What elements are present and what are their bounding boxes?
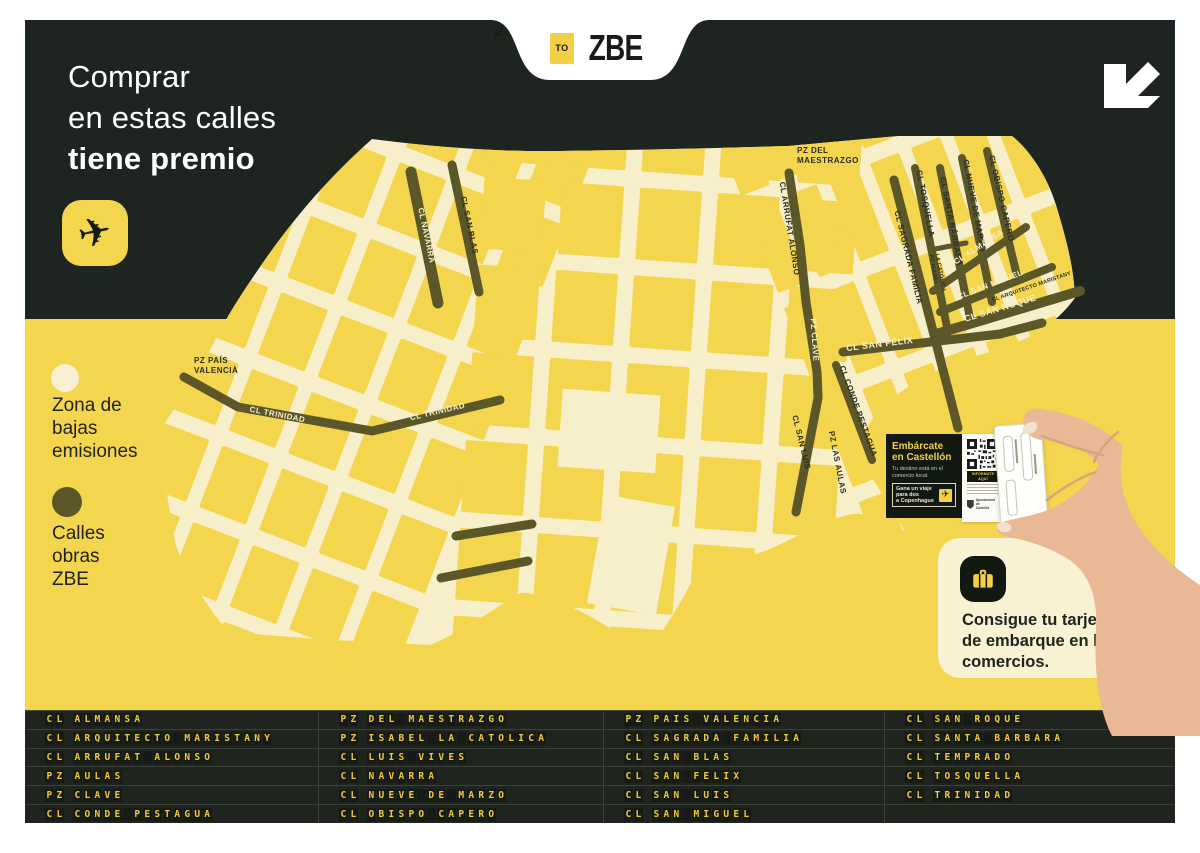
board-row bbox=[885, 804, 1175, 823]
legend-works-label: Calles obras ZBE bbox=[52, 522, 105, 591]
board-row: CLLUISVIVES bbox=[319, 748, 603, 767]
pass-text-line bbox=[1034, 454, 1037, 474]
card-promo: Gana un viaje para dos a Copenhague ✈ bbox=[892, 483, 956, 507]
board-row: CLTRINIDAD bbox=[885, 785, 1175, 804]
title-line: en estas calles bbox=[68, 97, 276, 138]
pass-slot bbox=[1002, 436, 1014, 473]
pass-text-line bbox=[1015, 439, 1018, 463]
to-box-icon: TO bbox=[550, 33, 574, 64]
board-row: CLSANLUIS bbox=[604, 785, 884, 804]
qr-label: INFÓRMATE AQUÍ bbox=[967, 471, 999, 482]
board-row: CLSANTABARBARA bbox=[885, 729, 1175, 748]
legend-works-swatch bbox=[52, 487, 82, 517]
fine-print-line bbox=[967, 487, 999, 489]
airplane-icon: ✈ bbox=[62, 200, 128, 266]
card-title: Embárcate en Castellón bbox=[892, 441, 956, 463]
board-row: CLSANROQUE bbox=[885, 711, 1175, 729]
down-left-arrow-icon bbox=[1096, 42, 1168, 114]
pass-slot bbox=[1005, 479, 1017, 516]
board-row: CLARRUFATALONSO bbox=[25, 748, 318, 767]
logo-to-text: TO bbox=[555, 44, 568, 53]
top-tab: TO ZBE bbox=[492, 20, 708, 84]
board-row: CLNAVARRA bbox=[319, 766, 603, 785]
board-column: CLALMANSACLARQUITECTOMARISTANYCLARRUFATA… bbox=[25, 711, 318, 823]
departures-board: CLALMANSACLARQUITECTOMARISTANYCLARRUFATA… bbox=[25, 710, 1175, 823]
pass-slot bbox=[1020, 432, 1033, 481]
board-row: CLSAGRADAFAMILIA bbox=[604, 729, 884, 748]
fine-print-line bbox=[967, 490, 999, 492]
suitcase-icon bbox=[960, 556, 1006, 602]
board-row: CLCONDEPESTAGUA bbox=[25, 804, 318, 823]
city-hall-logo: Ajuntament de Castelló bbox=[967, 498, 999, 510]
board-row: CLOBISPOCAPERO bbox=[319, 804, 603, 823]
embarcate-card: Embárcate en Castellón Tu destino está e… bbox=[886, 434, 1004, 522]
board-row: CLTOSQUELLA bbox=[885, 766, 1175, 785]
shield-icon bbox=[967, 500, 974, 509]
board-row: CLNUEVEDEMARZO bbox=[319, 785, 603, 804]
small-down-left-arrow-icon bbox=[492, 27, 504, 39]
board-column: CLSANROQUECLSANTABARBARACLTEMPRADOCLTOSQ… bbox=[884, 711, 1175, 823]
city-hall-logo-text: Ajuntament de Castelló bbox=[976, 498, 999, 510]
title-line: tiene premio bbox=[68, 138, 276, 179]
board-row: PZISABELLACATOLICA bbox=[319, 729, 603, 748]
qr-code bbox=[967, 439, 997, 469]
board-row: CLSANFELIX bbox=[604, 766, 884, 785]
poster-page: CL NAVARRA CL SAN BLAS CL TRINIDAD CL TR… bbox=[0, 0, 1200, 853]
card-subtitle: Tu destino está en el comercio local. bbox=[892, 466, 956, 479]
board-row: PZPAISVALENCIA bbox=[604, 711, 884, 729]
title-line: Comprar bbox=[68, 56, 276, 97]
fine-print-line bbox=[967, 484, 999, 486]
board-row: CLSANMIGUEL bbox=[604, 804, 884, 823]
boarding-pass-panel: Consigue tu tarjeta de embarque en los c… bbox=[938, 538, 1140, 678]
board-column: PZPAISVALENCIACLSAGRADAFAMILIACLSANBLASC… bbox=[603, 711, 884, 823]
embarcate-card-left: Embárcate en Castellón Tu destino está e… bbox=[886, 434, 962, 518]
page-title: Comprar en estas calles tiene premio bbox=[68, 56, 276, 179]
fine-print-line bbox=[967, 493, 999, 495]
board-row: CLSANBLAS bbox=[604, 748, 884, 767]
boarding-pass bbox=[994, 422, 1049, 525]
board-row: CLARQUITECTOMARISTANY bbox=[25, 729, 318, 748]
board-column: PZDELMAESTRAZGOPZISABELLACATOLICACLLUISV… bbox=[318, 711, 603, 823]
board-row: PZAULAS bbox=[25, 766, 318, 785]
board-row: CLALMANSA bbox=[25, 711, 318, 729]
panel-text: Consigue tu tarjeta de embarque en los c… bbox=[962, 610, 1117, 673]
logo-zbe-text: ZBE bbox=[589, 27, 643, 69]
legend-zone-swatch bbox=[51, 364, 79, 392]
board-row: PZDELMAESTRAZGO bbox=[319, 711, 603, 729]
to-zbe-logo: TO ZBE bbox=[492, 27, 708, 69]
legend-zone-label: Zona de bajas emisiones bbox=[52, 394, 138, 463]
board-row: PZCLAVE bbox=[25, 785, 318, 804]
board-row: CLTEMPRADO bbox=[885, 748, 1175, 767]
promo-text: Gana un viaje para dos a Copenhague bbox=[896, 486, 936, 504]
promo-plane-icon: ✈ bbox=[939, 489, 952, 502]
